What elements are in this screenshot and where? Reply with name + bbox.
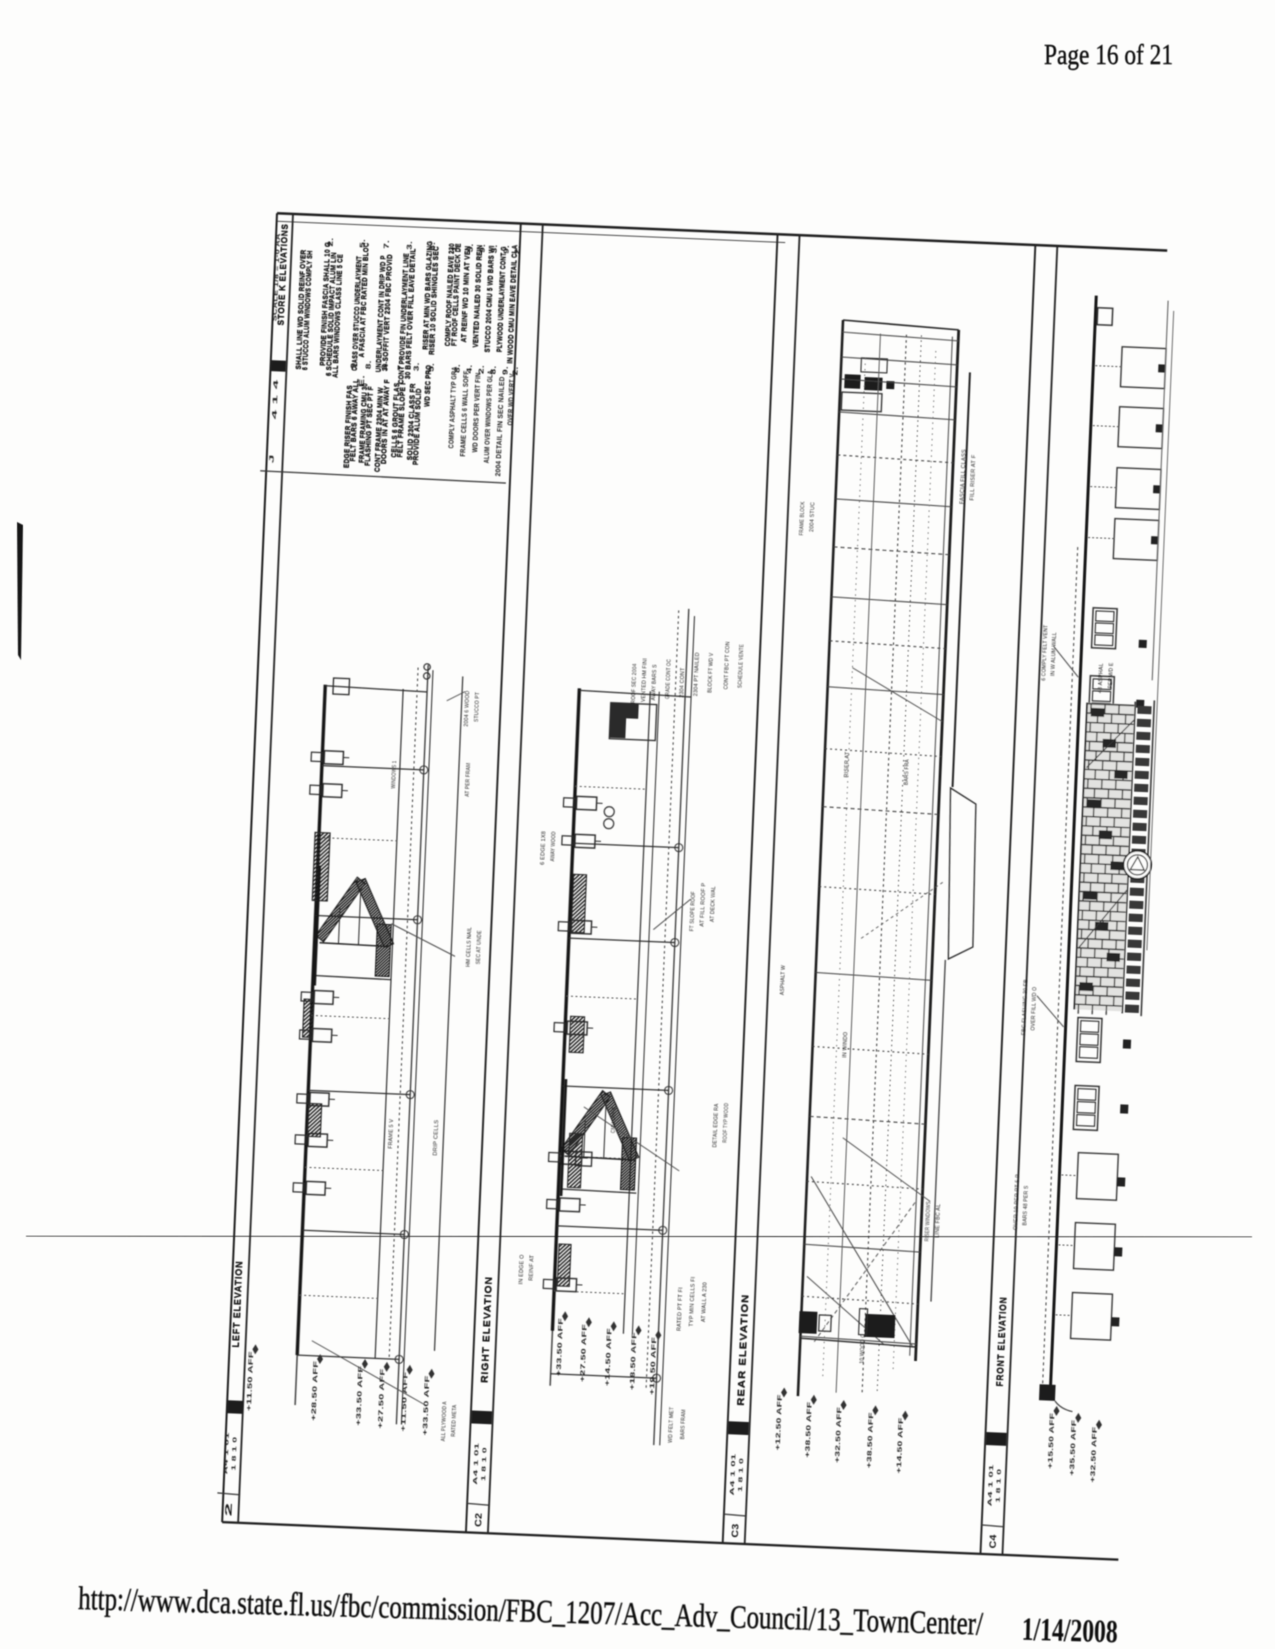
svg-text:10 WOOD C: 10 WOOD C (859, 1334, 866, 1364)
svg-text:3.: 3. (414, 362, 421, 371)
svg-text:ASPHALT W: ASPHALT W (780, 965, 787, 996)
svg-text:1.: 1. (452, 243, 459, 252)
svg-text:STUCCO PT: STUCCO PT (474, 692, 481, 722)
svg-text:8.: 8. (366, 360, 373, 369)
svg-text:IN EDGE O: IN EDGE O (518, 1254, 525, 1284)
svg-text:AWAY WOOD: AWAY WOOD (550, 831, 557, 861)
svg-text:9.: 9. (502, 366, 509, 375)
svg-text:WINDOWS 1: WINDOWS 1 (391, 761, 398, 789)
svg-text:5.: 5. (428, 363, 435, 372)
svg-text:3.: 3. (492, 244, 499, 253)
svg-text:5.: 5. (360, 239, 367, 248)
svg-text:RISER AT: RISER AT (844, 751, 851, 777)
svg-text:1/14/2008: 1/14/2008 (1021, 1612, 1118, 1649)
svg-text:Page 16 of 21: Page 16 of 21 (1044, 40, 1173, 71)
svg-text:7.: 7. (384, 240, 391, 249)
svg-text:48 ASPHAL: 48 ASPHAL (1098, 663, 1105, 694)
svg-text:5.: 5. (468, 243, 475, 252)
svg-text:2.: 2. (512, 366, 519, 375)
svg-text:7.: 7. (398, 361, 405, 370)
svg-text:4.: 4. (466, 364, 473, 373)
svg-text:C2: C2 (473, 1513, 484, 1527)
svg-text:3.: 3. (382, 361, 389, 370)
svg-text:FRAME 5 V: FRAME 5 V (388, 1119, 395, 1149)
svg-text:8.: 8. (490, 365, 497, 374)
svg-text:9.: 9. (351, 359, 358, 368)
svg-text:PER WD E: PER WD E (1108, 662, 1115, 688)
svg-text:8.: 8. (430, 242, 437, 251)
svg-text:2: 2 (223, 1502, 234, 1516)
svg-text:C3: C3 (730, 1523, 741, 1537)
svg-text:9.: 9. (503, 245, 510, 254)
svg-text:BARS FRAM: BARS FRAM (680, 1409, 687, 1439)
svg-text:J: J (269, 454, 276, 464)
svg-text:C4: C4 (988, 1534, 999, 1548)
svg-text:8.: 8. (454, 364, 461, 373)
svg-text:REINF AT: REINF AT (529, 1255, 536, 1281)
svg-text:2.: 2. (478, 365, 485, 374)
svg-text:BARS FRA: BARS FRA (904, 759, 911, 785)
svg-text:IN WINDO: IN WINDO (842, 1031, 849, 1057)
svg-text:2004 STUC: 2004 STUC (809, 502, 816, 532)
svg-text:9.: 9. (480, 244, 487, 253)
svg-text:2.: 2. (514, 245, 521, 254)
svg-text:2.: 2. (328, 237, 335, 246)
svg-text:3.: 3. (407, 241, 414, 250)
